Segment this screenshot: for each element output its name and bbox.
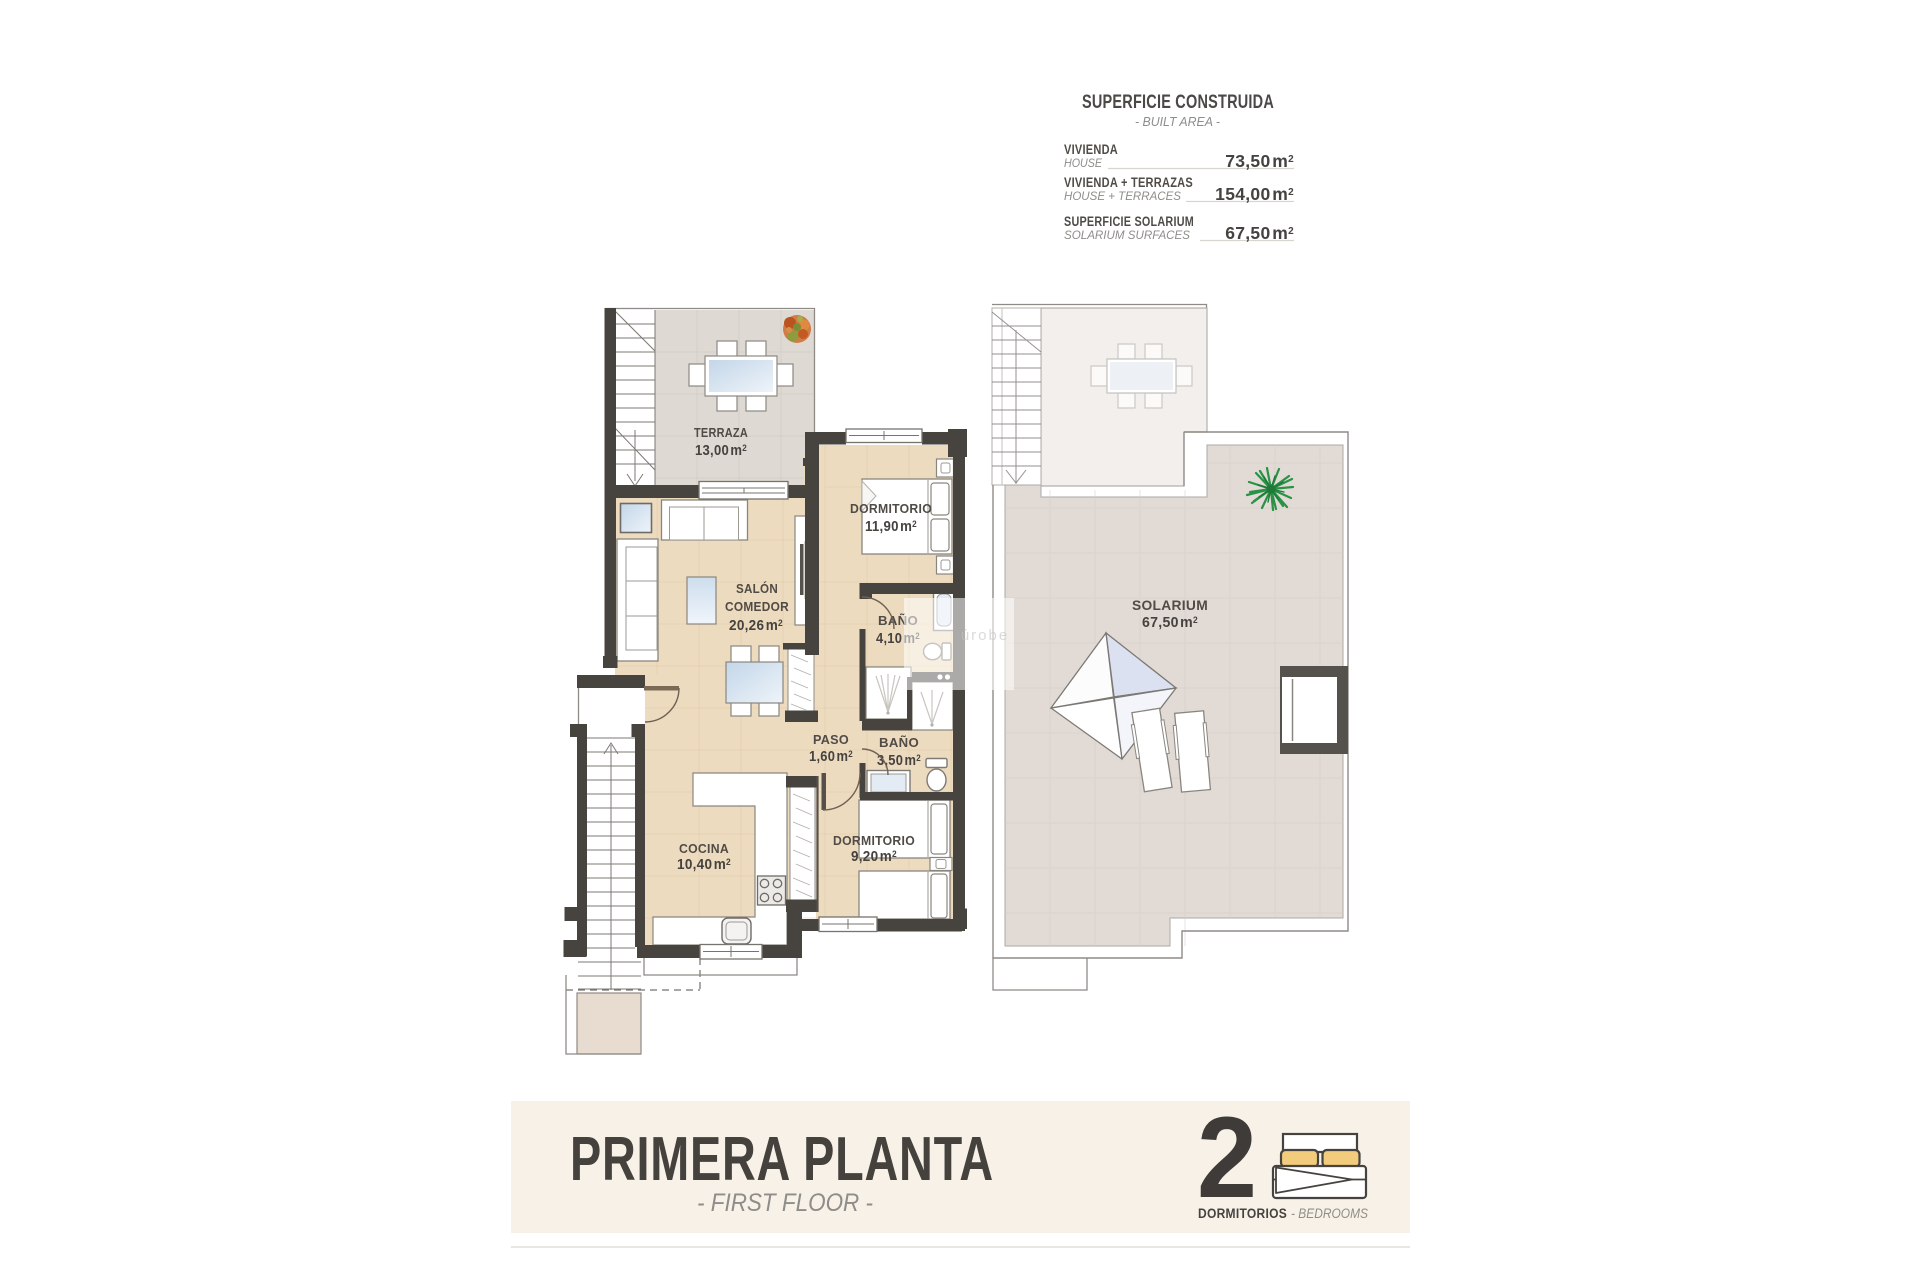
svg-text:TERRAZA: TERRAZA <box>694 425 748 440</box>
svg-text:20,26 m2: 20,26 m2 <box>729 618 783 634</box>
svg-text:11,90 m2: 11,90 m2 <box>865 519 917 535</box>
svg-text:- BEDROOMS: - BEDROOMS <box>1291 1206 1368 1221</box>
svg-text:SOLARIUM SURFACES: SOLARIUM SURFACES <box>1064 228 1190 242</box>
svg-text:9,20 m2: 9,20 m2 <box>851 849 897 865</box>
svg-text:73,50 m2: 73,50 m2 <box>1225 151 1294 171</box>
svg-text:HOUSE + TERRACES: HOUSE + TERRACES <box>1064 189 1181 203</box>
svg-text:10,40 m2: 10,40 m2 <box>677 857 731 873</box>
svg-text:PASO: PASO <box>813 732 849 747</box>
svg-text:SOLARIUM: SOLARIUM <box>1132 597 1208 613</box>
svg-text:DORMITORIOS: DORMITORIOS <box>1198 1206 1287 1221</box>
svg-text:SUPERFICIE CONSTRUIDA: SUPERFICIE CONSTRUIDA <box>1082 91 1274 113</box>
svg-text:SALÓN: SALÓN <box>736 581 778 596</box>
svg-text:DORMITORIO: DORMITORIO <box>833 833 915 848</box>
svg-text:COCINA: COCINA <box>679 841 729 856</box>
svg-text:1,60 m2: 1,60 m2 <box>809 749 853 765</box>
svg-text:SUPERFICIE SOLARIUM: SUPERFICIE SOLARIUM <box>1064 214 1194 229</box>
svg-text:HOUSE: HOUSE <box>1064 156 1103 170</box>
svg-text:VIVIENDA: VIVIENDA <box>1064 142 1118 157</box>
svg-text:VIVIENDA + TERRAZAS: VIVIENDA + TERRAZAS <box>1064 175 1193 190</box>
svg-text:13,00 m2: 13,00 m2 <box>695 443 747 459</box>
svg-text:- FIRST FLOOR -: - FIRST FLOOR - <box>697 1189 873 1217</box>
svg-text:67,50 m2: 67,50 m2 <box>1225 223 1294 243</box>
svg-text:2: 2 <box>1197 1094 1257 1222</box>
svg-text:COMEDOR: COMEDOR <box>725 599 789 614</box>
svg-text:- BUILT AREA -: - BUILT AREA - <box>1135 115 1220 129</box>
svg-text:BAÑO: BAÑO <box>879 735 919 750</box>
svg-text:67,50 m2: 67,50 m2 <box>1142 614 1198 631</box>
svg-text:PRIMERA PLANTA: PRIMERA PLANTA <box>570 1125 994 1194</box>
svg-text:DORMITORIO: DORMITORIO <box>850 501 932 516</box>
svg-text:úrobe: úrobe <box>961 627 1009 644</box>
svg-text:154,00 m2: 154,00 m2 <box>1215 184 1294 204</box>
